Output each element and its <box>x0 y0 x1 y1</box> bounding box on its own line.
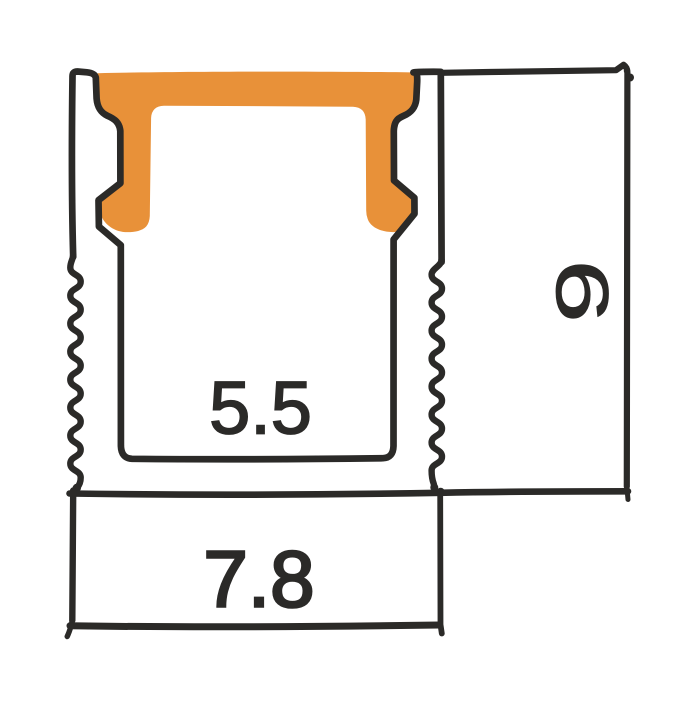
svg-text:9: 9 <box>542 260 624 324</box>
svg-text:7.8: 7.8 <box>203 535 314 624</box>
svg-text:5.5: 5.5 <box>209 367 312 450</box>
